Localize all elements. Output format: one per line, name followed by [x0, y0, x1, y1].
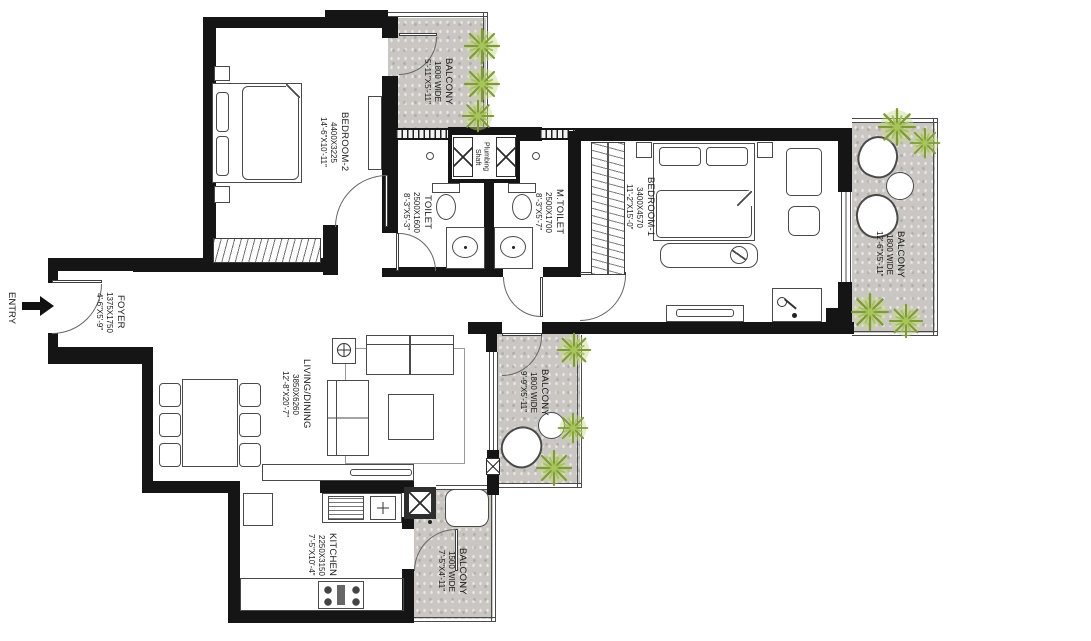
room-dim-ft: 8'-3"X5'-7" — [533, 172, 543, 252]
wall — [142, 347, 153, 484]
wall — [578, 322, 854, 334]
dining-chair — [239, 443, 261, 467]
window — [396, 128, 450, 140]
room-name: FOYER — [114, 280, 126, 344]
blanket-fold — [286, 84, 300, 98]
room-name: KITCHEN — [326, 520, 338, 590]
dining-table — [182, 379, 238, 467]
wc-bowl — [512, 194, 532, 220]
shaft-label-line1: Plumbing — [481, 136, 490, 178]
tree-icon — [556, 411, 590, 445]
wall — [484, 178, 494, 277]
room-dim-mm: 2500X1600 — [411, 176, 421, 248]
room-label-balcony-right: BALCONY 1800 WIDE 12'-6"X5'-11" — [874, 208, 906, 300]
shaft-duct — [453, 137, 473, 177]
sliding-door — [841, 192, 851, 282]
wall — [48, 333, 58, 347]
room-dim-ft: 14'-6"X10'-11" — [318, 92, 328, 192]
room-dim-mm: 1800 WIDE — [432, 38, 442, 124]
room-dim-mm: 3850X6260 — [290, 338, 300, 450]
railing — [491, 488, 496, 622]
room-dim-mm: 4400X3225 — [328, 92, 338, 192]
sofa-3seat — [366, 335, 454, 375]
tree-icon — [462, 26, 502, 66]
wall — [228, 611, 414, 623]
room-dim-mm: 2250X3150 — [316, 520, 326, 590]
side-table — [788, 206, 820, 236]
wall — [486, 334, 497, 352]
room-dim-mm: 2500X1700 — [543, 172, 553, 252]
wall — [323, 225, 338, 275]
room-dim-ft: 11'-2"X15'-0" — [624, 162, 634, 252]
tree-icon — [555, 331, 593, 369]
nightstand — [757, 142, 773, 158]
nightstand — [214, 66, 230, 81]
round-table — [886, 172, 914, 200]
railing — [414, 617, 496, 622]
tap — [532, 152, 540, 160]
wall — [826, 308, 844, 334]
room-label-foyer: FOYER 1375X1750 4'-6"X5'-9" — [94, 280, 126, 344]
floor-plan: Plumbing Shaft ENTRY — [0, 0, 1091, 641]
wall — [228, 481, 240, 623]
nightstand — [636, 142, 652, 158]
room-name: BALCONY — [456, 528, 468, 614]
wall — [48, 347, 153, 364]
room-label-shaft: Plumbing Shaft — [472, 136, 490, 178]
room-label-mtoilet: M.TOILET 2500X1700 8'-3"X5'-7" — [533, 172, 565, 252]
room-label-toilet: TOILET 2500X1600 8'-3"X5'-3" — [401, 176, 433, 248]
room-dim-ft: 8'-3"X5'-3" — [401, 176, 411, 248]
planter-tub — [445, 489, 489, 527]
tv — [350, 469, 412, 476]
room-name: BALCONY — [894, 208, 906, 300]
room-label-bedroom1: BEDROOM-1 3400X4570 11'-2"X15'-0" — [624, 162, 656, 252]
sofa-2seat — [327, 380, 369, 456]
nightstand — [214, 186, 230, 203]
wall — [203, 17, 327, 28]
room-name: BALCONY — [442, 38, 454, 124]
dining-chair — [239, 383, 261, 407]
coffee-table — [388, 394, 434, 440]
room-dim-ft: 4'-6"X5'-9" — [94, 280, 104, 344]
duct-box — [404, 487, 436, 519]
pillow — [216, 92, 229, 132]
room-name: BALCONY — [538, 352, 550, 432]
dining-chair — [159, 443, 181, 467]
blanket — [242, 86, 299, 180]
room-dim-ft: 9'-9"X5'-11" — [518, 352, 528, 432]
dining-chair — [159, 383, 181, 407]
fridge — [243, 493, 273, 526]
wc-bowl — [436, 194, 456, 220]
pillow — [659, 147, 701, 166]
pillow — [216, 136, 229, 176]
dresser — [368, 96, 382, 170]
room-name: LIVING/DINING — [300, 338, 312, 450]
entry-label-text: ENTRY — [5, 283, 17, 333]
wall — [142, 481, 240, 493]
room-label-living: LIVING/DINING 3850X6260 12'-8"X20'-7" — [280, 338, 312, 450]
shaft-duct — [496, 137, 516, 177]
tree-icon — [460, 98, 496, 134]
room-label-balcony-mid: BALCONY 1800 WIDE 9'-9"X5'-11" — [518, 352, 550, 432]
entry-label: ENTRY — [5, 283, 17, 333]
blanket-fold — [737, 191, 752, 206]
room-dim-mm: 1375X1750 — [104, 280, 114, 344]
basin-drain — [512, 246, 515, 249]
tap — [426, 152, 434, 160]
room-dim-ft: 12'-6"X5'-11" — [874, 208, 884, 300]
door-leaf — [399, 33, 437, 36]
pillow — [706, 147, 748, 166]
room-name: BEDROOM-2 — [338, 92, 350, 192]
room-dim-ft: 5'-11"X5'-11" — [422, 38, 432, 124]
room-dim-mm: 1500 WIDE — [446, 528, 456, 614]
room-label-balcony-top: BALCONY 1800 WIDE 5'-11"X5'-11" — [422, 38, 454, 124]
wall — [838, 128, 852, 192]
speaker-cone — [337, 343, 351, 357]
room-label-bedroom2: BEDROOM-2 4400X3225 14'-6"X10'-11" — [318, 92, 350, 192]
wardrobe — [591, 142, 625, 275]
room-dim-ft: 12'-8"X20'-7" — [280, 338, 290, 450]
shaft-label-line2: Shaft — [472, 136, 481, 178]
railing — [388, 12, 488, 17]
drain-point — [428, 520, 432, 524]
room-name: BEDROOM-1 — [644, 162, 656, 252]
wall — [543, 267, 581, 277]
tree-icon — [534, 448, 574, 488]
room-name: M.TOILET — [553, 172, 565, 252]
room-dim-mm: 1800 WIDE — [884, 208, 894, 300]
wc-tank — [432, 183, 460, 193]
wall — [575, 128, 850, 141]
tv — [676, 309, 734, 317]
chair — [786, 148, 822, 196]
lamp-base — [792, 313, 797, 318]
room-dim-ft: 7'-5"X4'-11" — [436, 528, 446, 614]
room-dim-mm: 1800 WIDE — [528, 352, 538, 432]
tree-icon — [887, 302, 925, 340]
door-arc — [503, 277, 541, 317]
dining-chair — [239, 413, 261, 437]
wall — [382, 17, 398, 38]
sliding-door — [489, 352, 498, 450]
wall — [468, 322, 502, 334]
wall — [48, 258, 133, 271]
basin-drain — [464, 246, 467, 249]
room-dim-ft: 7'-5"X10'-4" — [306, 520, 316, 590]
wc-tank — [508, 183, 536, 193]
kitchen-sink — [328, 496, 364, 520]
clock-fan — [730, 246, 748, 264]
room-dim-mm: 3400X4570 — [634, 162, 644, 252]
entry-arrow-head — [40, 296, 54, 316]
wall — [325, 10, 388, 28]
entry-arrow — [22, 302, 40, 310]
tree-icon — [908, 126, 942, 160]
room-label-balcony-bottom: BALCONY 1500 WIDE 7'-5"X4'-11" — [436, 528, 468, 614]
cooktop-connection — [370, 496, 396, 520]
wardrobe — [213, 238, 321, 263]
room-label-kitchen: KITCHEN 2250X3150 7'-5"X10'-4" — [306, 520, 338, 590]
room-name: TOILET — [421, 176, 433, 248]
dining-chair — [159, 413, 181, 437]
door-arc — [580, 275, 626, 321]
wall — [320, 481, 408, 493]
wall — [568, 131, 581, 274]
duct-box — [486, 458, 500, 475]
